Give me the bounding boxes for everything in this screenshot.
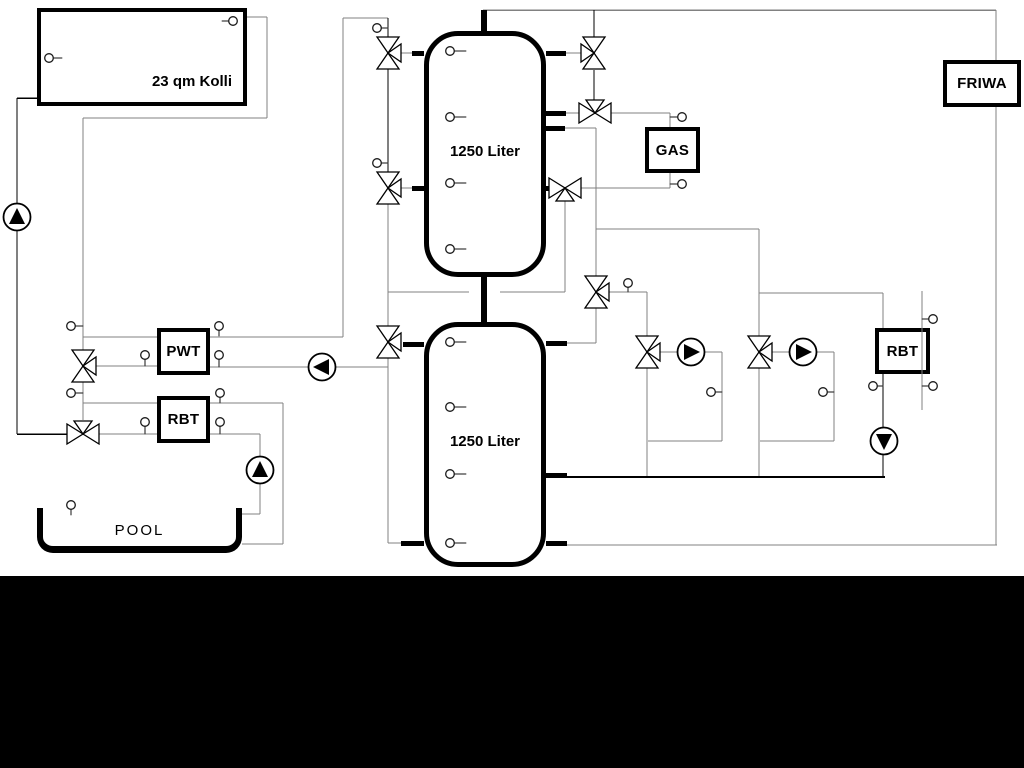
pipe-segment: [565, 128, 596, 129]
pipe-segment: [567, 476, 885, 478]
pipe-segment: [99, 434, 157, 435]
pipe-segment: [388, 292, 469, 293]
pipe-segment: [996, 107, 997, 545]
three-way-valve-icon: [377, 172, 401, 204]
pump-icon: [678, 339, 705, 366]
pipe-segment: [647, 292, 648, 336]
pipe-segment: [83, 118, 267, 119]
pipe-segment: [546, 473, 567, 478]
three-way-valve-icon: [72, 350, 96, 382]
pipe-segment: [670, 173, 671, 188]
pipe-segment: [759, 368, 760, 477]
three-way-valve-icon: [748, 336, 772, 368]
piping-layer: [0, 0, 1024, 576]
pipe-segment: [17, 433, 67, 435]
temperature-sensor-icon: [446, 338, 467, 347]
temperature-sensor-icon: [446, 470, 467, 479]
pipe-segment: [546, 51, 566, 56]
pump-icon: [247, 457, 274, 484]
pipe-segment: [546, 341, 567, 346]
pipe-segment: [401, 53, 412, 54]
pipe-segment: [670, 113, 671, 127]
pipe-segment: [760, 441, 834, 442]
pipe-segment: [996, 10, 997, 60]
temperature-sensor-icon: [216, 418, 225, 435]
pipe-segment: [596, 308, 597, 343]
temperature-sensor-icon: [216, 389, 225, 404]
pipe-segment: [722, 352, 723, 441]
pipe-segment: [83, 118, 84, 350]
heating-system-schematic: 23 qm Kolli 1250 Liter 1250 Liter PWT RB…: [0, 0, 1024, 576]
temperature-sensor-icon: [446, 403, 467, 412]
pipe-segment: [83, 337, 157, 338]
temperature-sensor-icon: [922, 315, 938, 324]
pipe-segment: [566, 53, 581, 54]
temperature-sensor-icon: [446, 179, 467, 188]
pipe-segment: [403, 342, 424, 347]
pipe-segment: [343, 18, 344, 337]
three-way-valve-icon: [67, 421, 99, 444]
pump-icon: [871, 428, 898, 455]
pipe-segment: [647, 368, 648, 477]
pipe-segment: [17, 97, 37, 99]
three-way-valve-icon: [585, 276, 609, 308]
temperature-sensor-icon: [222, 17, 238, 26]
pipe-segment: [267, 17, 268, 118]
temperature-sensor-icon: [215, 322, 224, 337]
temperature-sensor-icon: [670, 180, 687, 189]
pump-icon: [309, 354, 336, 381]
pipe-segment: [242, 544, 283, 545]
pipe-segment: [882, 374, 883, 477]
temperature-sensor-icon: [141, 351, 150, 367]
temperature-sensor-icon: [446, 245, 467, 254]
pipe-segment: [412, 186, 424, 191]
pipe-segment: [83, 403, 157, 404]
pipe-segment: [834, 352, 835, 441]
pipe-segment: [922, 291, 923, 410]
pipe-segment: [567, 545, 997, 546]
pipe-segment: [343, 18, 388, 19]
three-way-valve-icon: [549, 178, 581, 201]
pipe-segment: [283, 403, 284, 544]
pipe-segment: [759, 293, 883, 294]
pipe-segment: [96, 366, 157, 367]
temperature-sensor-icon: [446, 113, 467, 122]
temperature-sensor-icon: [373, 24, 389, 33]
pipe-segment: [481, 10, 487, 31]
pipe-segment: [546, 126, 565, 131]
bottom-black-band: [0, 576, 1024, 768]
pipe-segment: [210, 403, 283, 404]
pipe-segment: [247, 17, 267, 18]
pipe-segment: [401, 188, 412, 189]
pipe-segment: [596, 128, 597, 276]
temperature-sensor-icon: [869, 382, 884, 391]
pipe-segment: [388, 204, 389, 543]
temperature-sensor-icon: [922, 382, 938, 391]
pipe-segment: [593, 70, 594, 100]
pipe-segment: [210, 337, 343, 338]
pipe-segment: [593, 10, 594, 38]
pipe-segment: [596, 229, 759, 230]
temperature-sensor-icon: [624, 279, 633, 293]
three-way-valve-icon: [581, 37, 605, 69]
temperature-sensor-icon: [45, 54, 63, 63]
pipe-segment: [704, 352, 722, 353]
temperature-sensor-icon: [67, 501, 76, 516]
pipe-segment: [648, 441, 722, 442]
pipe-segment: [883, 293, 884, 328]
pipe-segment: [567, 343, 596, 344]
temperature-sensor-icon: [819, 388, 835, 397]
pipe-segment: [483, 9, 996, 11]
pipe-segment: [772, 352, 789, 353]
pipe-segment: [660, 352, 677, 353]
three-way-valve-icon: [377, 37, 401, 69]
pipe-segment: [759, 229, 760, 336]
temperature-sensor-icon: [707, 388, 723, 397]
pipe-segment: [611, 113, 670, 114]
pipe-segment: [481, 277, 487, 322]
three-way-valve-icon: [636, 336, 660, 368]
temperature-sensor-icon: [141, 418, 150, 435]
three-way-valve-icon: [579, 100, 611, 123]
pipe-segment: [388, 543, 401, 544]
temperature-sensor-icon: [670, 113, 687, 122]
pipe-segment: [412, 51, 424, 56]
pipe-segment: [242, 514, 260, 515]
temperature-sensor-icon: [67, 389, 84, 398]
pipe-segment: [16, 98, 17, 434]
pipe-segment: [566, 113, 579, 114]
pipe-segment: [210, 434, 260, 435]
pipe-segment: [83, 382, 84, 420]
pipe-segment: [401, 541, 424, 546]
temperature-sensor-icon: [67, 322, 84, 331]
pipe-segment: [546, 111, 566, 116]
pipe-segment: [816, 352, 834, 353]
pipe-segment: [210, 367, 388, 368]
pump-icon: [4, 204, 31, 231]
pump-icon: [790, 339, 817, 366]
temperature-sensor-icon: [373, 159, 389, 168]
temperature-sensor-icon: [446, 539, 467, 548]
pipe-segment: [546, 541, 567, 546]
temperature-sensor-icon: [446, 47, 467, 56]
temperature-sensor-icon: [215, 351, 224, 368]
pipe-segment: [565, 201, 566, 292]
pipe-segment: [581, 188, 670, 189]
three-way-valve-icon: [377, 326, 401, 358]
pipe-segment: [500, 292, 565, 293]
schematic-screenshot: 23 qm Kolli 1250 Liter 1250 Liter PWT RB…: [0, 0, 1024, 768]
